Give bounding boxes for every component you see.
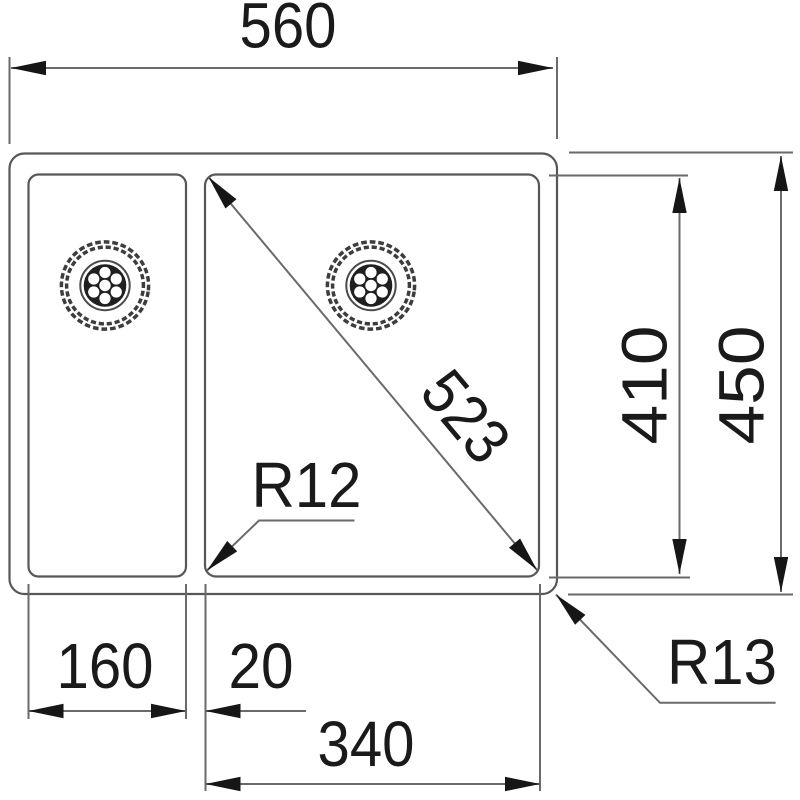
svg-text:560: 560 [240,0,337,62]
svg-text:160: 160 [57,630,154,702]
svg-text:R13: R13 [667,626,777,698]
svg-text:340: 340 [318,708,415,780]
svg-text:R12: R12 [252,449,362,521]
svg-text:20: 20 [229,630,294,702]
svg-text:450: 450 [706,326,778,445]
svg-text:410: 410 [609,326,681,445]
